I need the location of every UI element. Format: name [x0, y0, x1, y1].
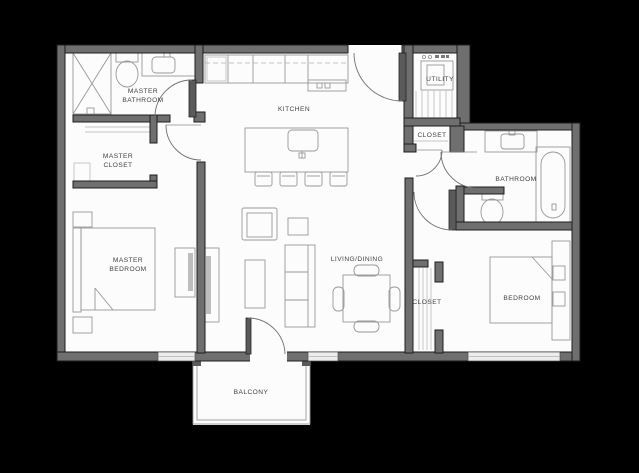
wall-living-east [405, 178, 413, 353]
room-label-bedroom: BEDROOM [503, 295, 540, 302]
wall-utility-right [457, 45, 470, 130]
wall-right [572, 123, 580, 361]
wall-master-closet-east [150, 115, 157, 143]
room-label-balcony: BALCONY [234, 389, 269, 396]
room-label-entry-closet: CLOSET [417, 132, 446, 139]
wall-bathroom-west-upper [450, 126, 464, 152]
wall-toilet-privacy [464, 187, 504, 194]
room-label-master-bedroom-line1: MASTER [113, 257, 143, 264]
floor-plan-canvas: MASTER BATHROOM MASTER CLOSET KITCHEN UT… [0, 0, 639, 473]
window [468, 352, 560, 361]
room-label-bedroom-closet: CLOSET [412, 299, 441, 306]
wall-bedroom-closet-east-1 [435, 262, 443, 282]
wall-master-living [197, 162, 205, 353]
tv-icon [206, 256, 211, 314]
room-label-master-bathroom-line2: BATHROOM [122, 97, 163, 104]
wall-bathroom-north [457, 123, 572, 130]
tv-icon [188, 253, 193, 291]
room-label-master-closet-line1: MASTER [103, 153, 133, 160]
balcony-door-opening [250, 351, 287, 362]
room-label-utility: UTILITY [426, 76, 454, 83]
wall-nub [150, 175, 157, 181]
wall-bathroom-south [456, 222, 572, 230]
wall-master-closet-south [73, 181, 157, 188]
room-label-master-bathroom-line1: MASTER [128, 88, 158, 95]
window [308, 352, 338, 361]
wall-bedroom-closet-north [413, 260, 428, 267]
room-label-master-closet-line2: CLOSET [103, 162, 132, 169]
room-label-bathroom: BATHROOM [495, 176, 536, 183]
wall-left [57, 45, 65, 361]
room-label-living-dining: LIVING/DINING [331, 256, 383, 263]
window [158, 352, 195, 361]
room-label-kitchen: KITCHEN [278, 106, 310, 113]
wall-closet-south-stub [404, 144, 416, 152]
wall-bedroom-closet-east-2 [435, 330, 443, 353]
floor-plan: MASTER BATHROOM MASTER CLOSET KITCHEN UT… [0, 0, 639, 473]
wall-utility-closet-divider [404, 118, 460, 126]
wall-master-bath-east [195, 45, 203, 83]
room-label-master-bedroom-line2: BEDROOM [109, 266, 146, 273]
